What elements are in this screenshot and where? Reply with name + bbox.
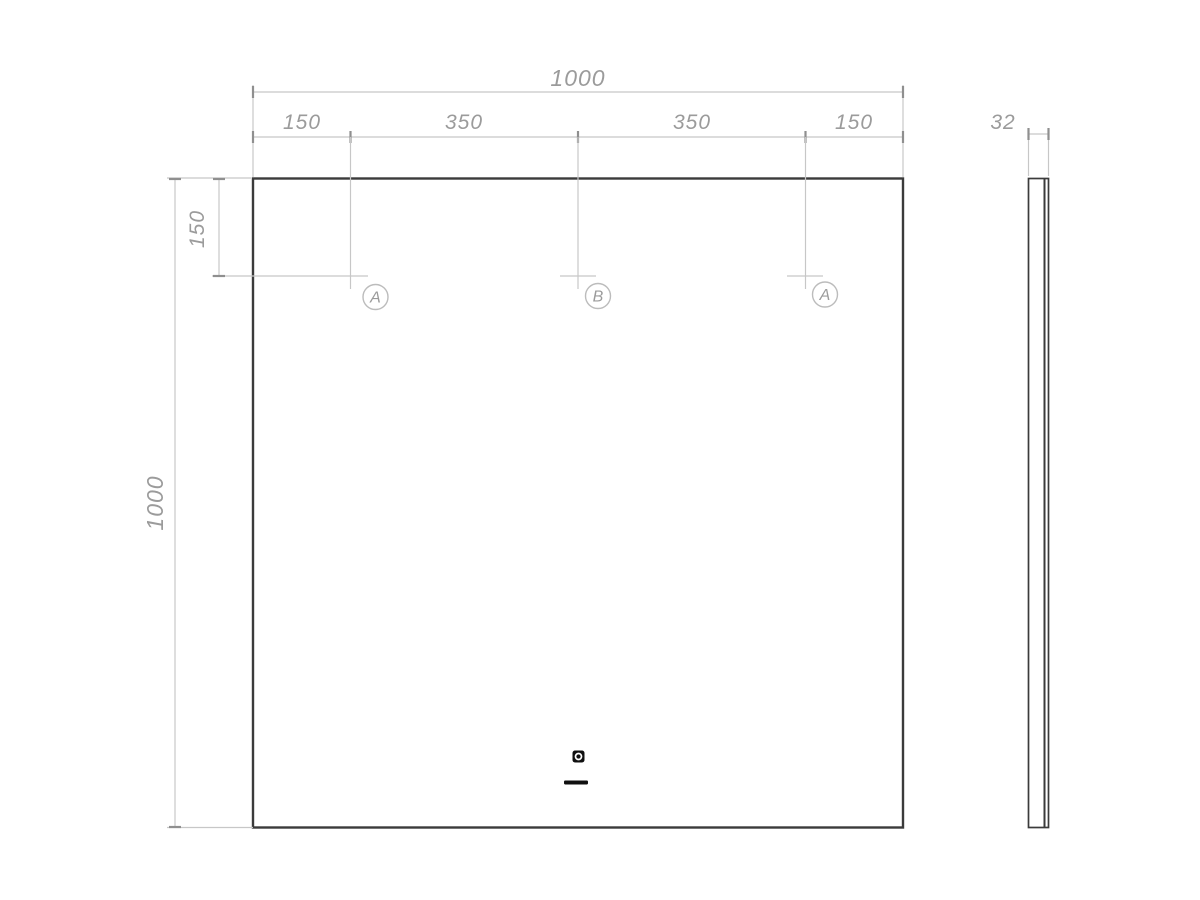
dim-label-segment-3: 350: [673, 111, 711, 134]
dim-label-hole-offset: 150: [186, 210, 209, 248]
touch-sensor-icon: [573, 751, 585, 763]
dim-label-depth: 32: [990, 111, 1015, 134]
dim-label-segment-4: 150: [835, 111, 873, 134]
hole-marker-label-a1: A: [369, 290, 381, 307]
dim-label-overall-height: 1000: [142, 475, 168, 530]
drawing-canvas: 1000 150 350 350 150 1000 150 A B A 32: [0, 0, 1200, 900]
dim-label-segment-1: 150: [283, 111, 321, 134]
indicator-dash-icon: [564, 781, 588, 785]
dim-label-segment-2: 350: [445, 111, 483, 134]
dim-label-overall-width: 1000: [550, 65, 605, 91]
hole-marker-label-b: B: [593, 289, 604, 306]
hole-marker-label-a2: A: [819, 287, 831, 304]
technical-drawing: 1000 150 350 350 150 1000 150 A B A 32: [0, 0, 1200, 900]
